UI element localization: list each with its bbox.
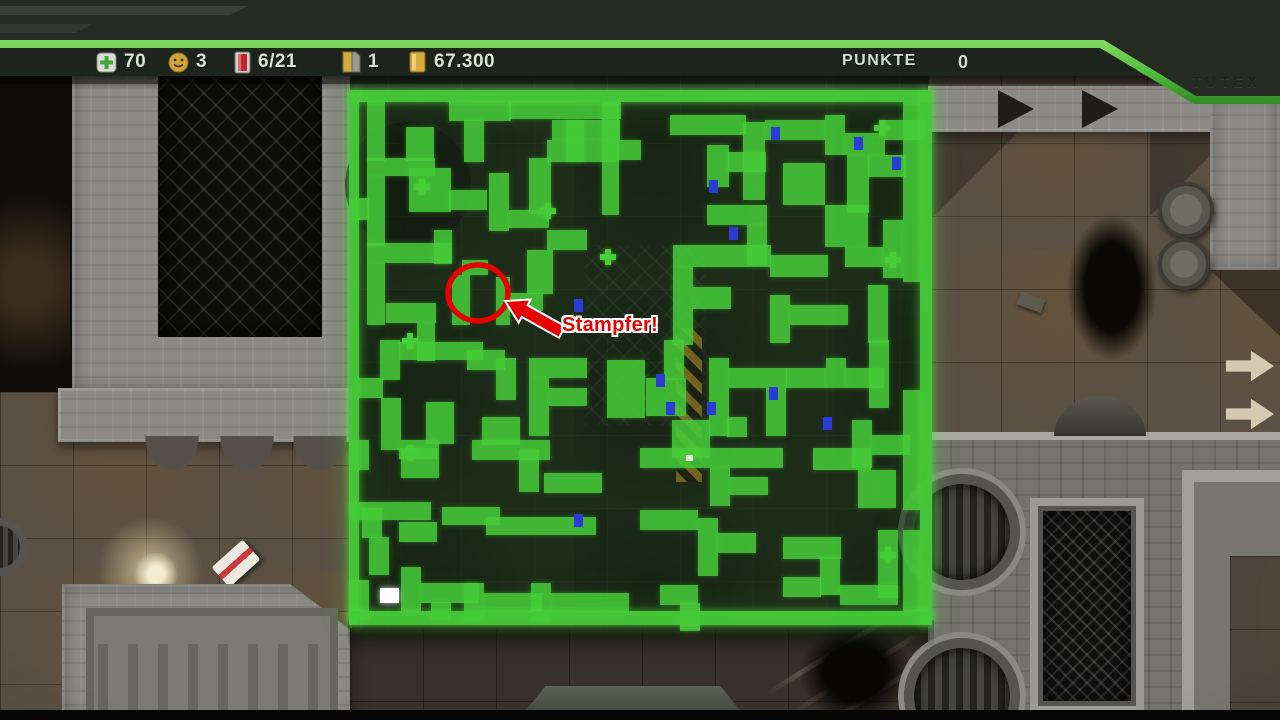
annotation-circle [448,265,508,321]
hud-drop-shadow [0,76,1280,90]
map-cell [449,190,487,210]
map-cell [547,230,587,250]
map-cell [840,585,898,605]
map-door-marker [574,514,583,527]
map-door-marker [771,127,780,140]
map-cell [607,360,645,418]
map-cell [903,102,920,282]
map-door-marker [729,227,738,240]
map-cell [698,518,718,576]
map-cell [868,285,888,343]
map-plus-marker [414,179,430,195]
map-plus-marker [874,120,890,136]
wall-arch [140,436,204,478]
map-cell [673,267,693,345]
map-cell [426,402,454,444]
blast-crater [1052,190,1172,385]
map-cell [883,220,903,278]
annotation-label: Stampfer! [562,314,658,337]
map-plus-marker [885,252,901,268]
map-door-marker [666,402,675,415]
map-cell [464,120,484,162]
map-cell [790,305,848,325]
barrel-icon [1158,182,1214,238]
map-cell [728,152,766,172]
barrel-icon [1158,238,1210,290]
map-cell [783,163,825,205]
wall-arch [215,436,279,478]
map-cell [770,255,828,277]
map-door-marker [656,374,665,387]
map-cell [852,420,872,468]
map-door-marker [854,137,863,150]
map-cell [845,247,883,267]
map-cell [401,567,421,611]
map-cell [381,398,401,450]
map-cell [783,537,841,559]
map-cell [826,358,846,388]
map-door-marker [892,157,901,170]
map-door-marker [823,417,832,430]
map-cell [845,133,885,155]
map-plus-marker [402,445,418,461]
map-door-marker [769,387,778,400]
map-cell [566,120,584,162]
structure-topright [1210,92,1280,270]
map-dot-marker [686,455,693,461]
score-label: PUNKTE [842,52,917,70]
map-cell [519,450,539,492]
map-cell [551,593,629,613]
map-cell [380,340,400,380]
map-cell [362,508,382,538]
map-border [349,90,932,102]
map-cell [640,510,698,530]
map-cell [399,522,437,542]
map-cell [369,537,389,575]
map-cell [825,115,845,155]
map-cell [693,287,731,309]
map-plus-marker [402,333,418,349]
map-cell [673,245,771,267]
wall-bottomleft [58,388,352,442]
map-border [920,90,932,625]
map-cell [660,585,698,605]
structure-pillars [98,644,326,720]
map-cell [544,473,602,493]
map-cell [664,340,684,380]
map-cell [367,176,385,246]
hud-bevel-streak [0,6,248,15]
map-border [349,611,932,625]
annotation-arrow [505,300,565,338]
map-cell [710,468,730,506]
map-cell [602,103,619,215]
map-cell [727,417,747,437]
map-cell [783,577,821,597]
map-cell [820,557,840,595]
map-cell [825,205,868,247]
map-cell [406,127,434,161]
map-cell [670,115,746,135]
map-border [349,90,359,625]
map-cell [730,477,768,495]
floor-left-dirt [0,170,70,395]
wall-right-top [928,86,1234,132]
map-cells [349,90,932,625]
map-cell [903,390,920,510]
map-plus-marker [540,203,556,219]
map-cell [359,378,383,398]
letterbox-bottom [0,710,1280,720]
wall-arch [288,436,352,478]
map-cell [489,173,509,231]
map-cell [529,378,549,436]
map-cell [858,470,896,508]
map-cell [367,263,385,325]
hud-bevel-streak [0,24,92,33]
floor-right-inner [1230,556,1280,720]
map-cell [549,388,587,406]
map-cell [729,368,787,388]
metal-pit [1030,498,1144,714]
map-cell [869,340,889,408]
map-door-marker [707,402,716,415]
map-door-marker [709,180,718,193]
map-cell [903,530,920,611]
map-cell [709,358,729,436]
map-cell [367,101,385,161]
map-player-marker [380,588,399,603]
map-cell [718,533,756,553]
map-cell [786,368,826,388]
map-cell [386,303,436,323]
map-cell [640,448,783,468]
fence-pit [158,70,322,337]
map-cell [449,101,511,121]
minimap [349,90,932,625]
map-plus-marker [880,547,896,563]
annotation-graphics [440,256,640,366]
game-screen: Stampfer! 70 [0,0,1280,720]
map-cell [619,140,641,160]
map-cell [770,295,790,343]
map-cell [707,205,767,225]
